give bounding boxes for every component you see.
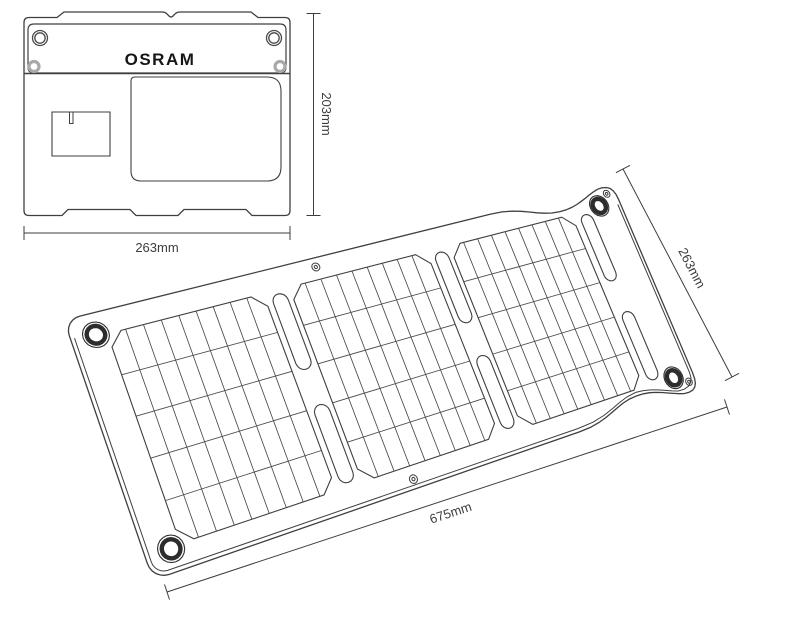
cell-column-line bbox=[412, 256, 485, 441]
cell-row-line bbox=[318, 324, 455, 364]
folded-label-patch bbox=[52, 112, 110, 156]
rivet-icon bbox=[603, 190, 610, 197]
cell-row-line bbox=[478, 283, 600, 318]
diagram-canvas: OSRAM 263mm 203mm 675mm 263mm bbox=[0, 0, 800, 632]
dimension-line bbox=[307, 14, 321, 216]
rivet-icon bbox=[409, 475, 417, 484]
cell-column-line bbox=[144, 325, 217, 532]
cell-column-line bbox=[367, 267, 440, 455]
eyelet-icon bbox=[267, 31, 282, 46]
unfolded-width-label: 675mm bbox=[428, 499, 474, 527]
gray-ring-eyelet-icon bbox=[29, 62, 39, 72]
folded-width-dimension: 263mm bbox=[24, 226, 290, 255]
grommet-ring-icon bbox=[590, 196, 609, 216]
grommet-ring-icon bbox=[158, 535, 185, 563]
cell-column-line bbox=[337, 275, 410, 466]
grommet-ring-icon bbox=[664, 367, 683, 389]
rivet-icon bbox=[688, 380, 691, 383]
patch-slit bbox=[70, 112, 74, 124]
solar-grid-1 bbox=[112, 297, 332, 539]
folded-pocket bbox=[131, 77, 281, 181]
cell-column-line bbox=[558, 218, 630, 391]
gray-ring-eyelet-icon bbox=[275, 62, 285, 72]
cell-row-line bbox=[151, 411, 307, 459]
dimension-line bbox=[24, 226, 290, 240]
cell-row-line bbox=[347, 398, 484, 442]
folded-view: OSRAM 263mm 203mm bbox=[24, 12, 334, 255]
folded-width-label: 263mm bbox=[135, 240, 178, 255]
folded-height-label: 203mm bbox=[319, 92, 334, 135]
grommet-ring bbox=[593, 199, 606, 213]
cell-column-line bbox=[230, 302, 303, 502]
cell-column-line bbox=[126, 329, 199, 537]
eyelet-icon bbox=[33, 31, 48, 46]
cell-column-line bbox=[161, 320, 234, 525]
cell-column-line bbox=[213, 307, 286, 508]
grommet-ring bbox=[667, 370, 680, 385]
cell-row-line bbox=[304, 288, 441, 325]
solar-grid-2 bbox=[294, 255, 495, 478]
folded-height-dimension: 203mm bbox=[307, 14, 335, 216]
unfolded-height-label: 263mm bbox=[675, 245, 708, 290]
slot-cutout bbox=[622, 312, 658, 380]
rivet-icon bbox=[605, 192, 608, 195]
cell-row-line bbox=[136, 371, 292, 416]
rivet-icon bbox=[314, 265, 317, 268]
grommet-ring bbox=[87, 326, 106, 344]
technical-drawing: OSRAM 263mm 203mm 675mm 263mm bbox=[0, 0, 800, 632]
cell-column-line bbox=[545, 221, 617, 395]
rivet-icon bbox=[312, 263, 320, 271]
rivet-icon bbox=[412, 477, 415, 481]
cell-column-line bbox=[179, 316, 252, 520]
cell-column-line bbox=[519, 228, 592, 404]
cell-column-line bbox=[247, 298, 320, 496]
cell-column-line bbox=[491, 235, 564, 413]
cell-column-line bbox=[505, 232, 578, 409]
cell-column-line bbox=[305, 283, 378, 477]
grommet-ring bbox=[162, 539, 181, 558]
cell-row-line bbox=[464, 249, 586, 282]
grommet-ring-icon bbox=[83, 322, 110, 348]
cell-row-line bbox=[165, 451, 321, 501]
cell-row-line bbox=[493, 317, 615, 354]
cell-column-line bbox=[196, 311, 269, 513]
cell-column-line bbox=[464, 242, 537, 423]
cell-column-line bbox=[352, 271, 425, 461]
brand-logo: OSRAM bbox=[125, 50, 196, 69]
folded-outline bbox=[24, 12, 290, 216]
cell-row-line bbox=[333, 361, 470, 403]
slot-cutout bbox=[581, 215, 616, 281]
